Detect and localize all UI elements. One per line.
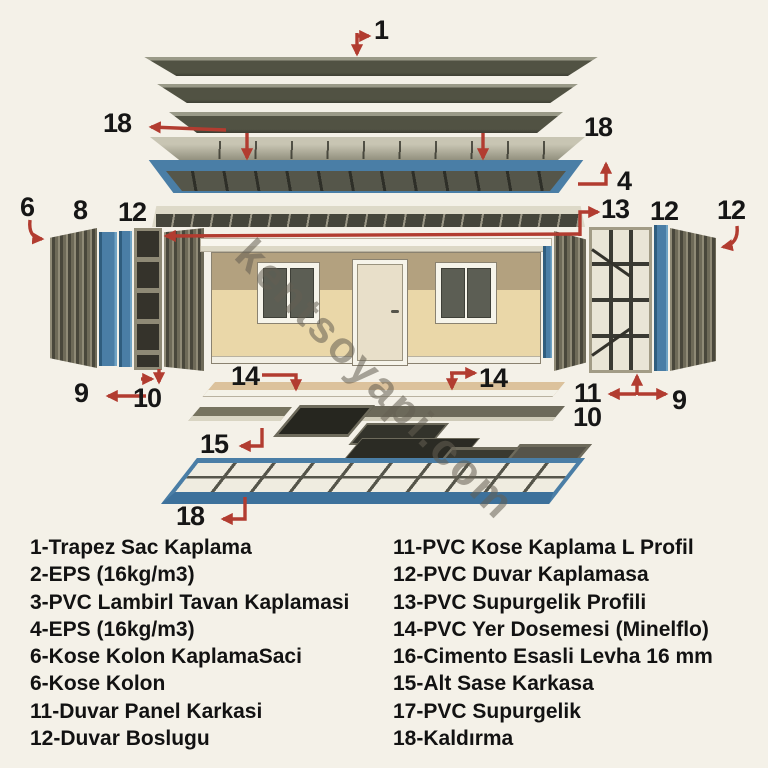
- roof-eps-insulation-panel: [150, 137, 585, 161]
- arrow-12-far-right: [723, 226, 737, 247]
- door-handle: [391, 310, 399, 313]
- callout-15: 15: [200, 431, 228, 458]
- legend-item: 12-PVC Duvar Kaplamasa: [393, 561, 713, 588]
- corner-column-blue-left-1: [99, 232, 117, 366]
- wall-corrugated-panel-left-outer: [50, 228, 97, 368]
- legend-item: 12-Duvar Boslugu: [30, 725, 349, 752]
- callout-12-right-mid: 12: [650, 198, 678, 225]
- roof-cassette-blue-frame: [142, 160, 590, 193]
- legend-item: 3-PVC Lambirl Tavan Kaplamasi: [30, 589, 349, 616]
- callout-14-left: 14: [231, 363, 259, 390]
- legend-item: 2-EPS (16kg/m3): [30, 561, 349, 588]
- frame-horizontal-bar-1: [592, 262, 649, 266]
- arrow-6: [30, 220, 42, 239]
- arrow-15: [241, 428, 262, 446]
- window-right-pane-b: [467, 268, 491, 318]
- callout-18-roof-right: 18: [584, 114, 612, 141]
- legend-item: 6-Kose Kolon: [30, 670, 349, 697]
- exploded-container-house-diagram: kentsoyapi.com: [0, 0, 768, 768]
- legend-item: 6-Kose Kolon KaplamaSaci: [30, 643, 349, 670]
- legend-item: 1-Trapez Sac Kaplama: [30, 534, 349, 561]
- wall-corrugated-panel-left-inner: [164, 228, 204, 371]
- callout-10-left: 10: [133, 385, 161, 412]
- callout-10-right: 10: [573, 404, 601, 431]
- roof-trapez-sheet-2: [155, 84, 580, 103]
- window-right: [435, 262, 497, 324]
- legend-item: 13-PVC Supurgelik Profili: [393, 589, 713, 616]
- legend-item: 17-PVC Supurgelik: [393, 698, 713, 725]
- legend-item: 11-Duvar Panel Karkasi: [30, 698, 349, 725]
- corner-column-blue-left-2: [119, 231, 132, 367]
- arrow-12-long: [166, 234, 580, 236]
- roof-panel-ribs: [185, 141, 550, 159]
- roof-trapez-sheet-1: [142, 57, 600, 76]
- callout-18-bottom: 18: [176, 503, 204, 530]
- callout-9-right: 9: [672, 387, 686, 414]
- legend-item: 16-Cimento Esasli Levha 16 mm: [393, 643, 713, 670]
- arrow-4: [578, 164, 606, 184]
- corner-column-blue-right-outer: [654, 225, 668, 371]
- legend-item: 18-Kaldırma: [393, 725, 713, 752]
- frame-horizontal-bar-2: [592, 298, 649, 302]
- callout-14-right: 14: [479, 365, 507, 392]
- wall-corrugated-panel-right-inner: [554, 231, 586, 371]
- wall-panel-frame-right: [589, 227, 652, 373]
- wall-panel-frame-left: [134, 228, 162, 370]
- callout-12-left: 12: [118, 199, 146, 226]
- roof-cassette-underside: [166, 171, 566, 191]
- callout-1: 1: [374, 17, 388, 44]
- callout-4: 4: [617, 168, 631, 195]
- legend-item: 14-PVC Yer Dosemesi (Minelflo): [393, 616, 713, 643]
- callout-9-left: 9: [74, 380, 88, 407]
- callout-18-roof-left: 18: [103, 110, 131, 137]
- callout-6: 6: [20, 194, 34, 221]
- ceiling-pvc-panel: [152, 206, 585, 227]
- corner-column-blue-right-inner: [543, 246, 552, 358]
- legend-column-right: 11-PVC Kose Kaplama L Profil 12-PVC Duva…: [393, 534, 713, 752]
- roof-trapez-sheet-3: [167, 112, 565, 133]
- callout-13: 13: [601, 196, 629, 223]
- legend-item: 15-Alt Sase Karkasa: [393, 670, 713, 697]
- legend-item: 4-EPS (16kg/m3): [30, 616, 349, 643]
- legend-item: 11-PVC Kose Kaplama L Profil: [393, 534, 713, 561]
- wall-corrugated-panel-right-outer: [670, 228, 716, 371]
- legend-column-left: 1-Trapez Sac Kaplama 2-EPS (16kg/m3) 3-P…: [30, 534, 349, 752]
- callout-12-right-outer: 12: [717, 197, 745, 224]
- callout-8: 8: [73, 197, 87, 224]
- floor-board-left: [188, 407, 292, 421]
- ceiling-panel-ribs: [156, 214, 580, 227]
- window-right-pane-a: [441, 268, 465, 318]
